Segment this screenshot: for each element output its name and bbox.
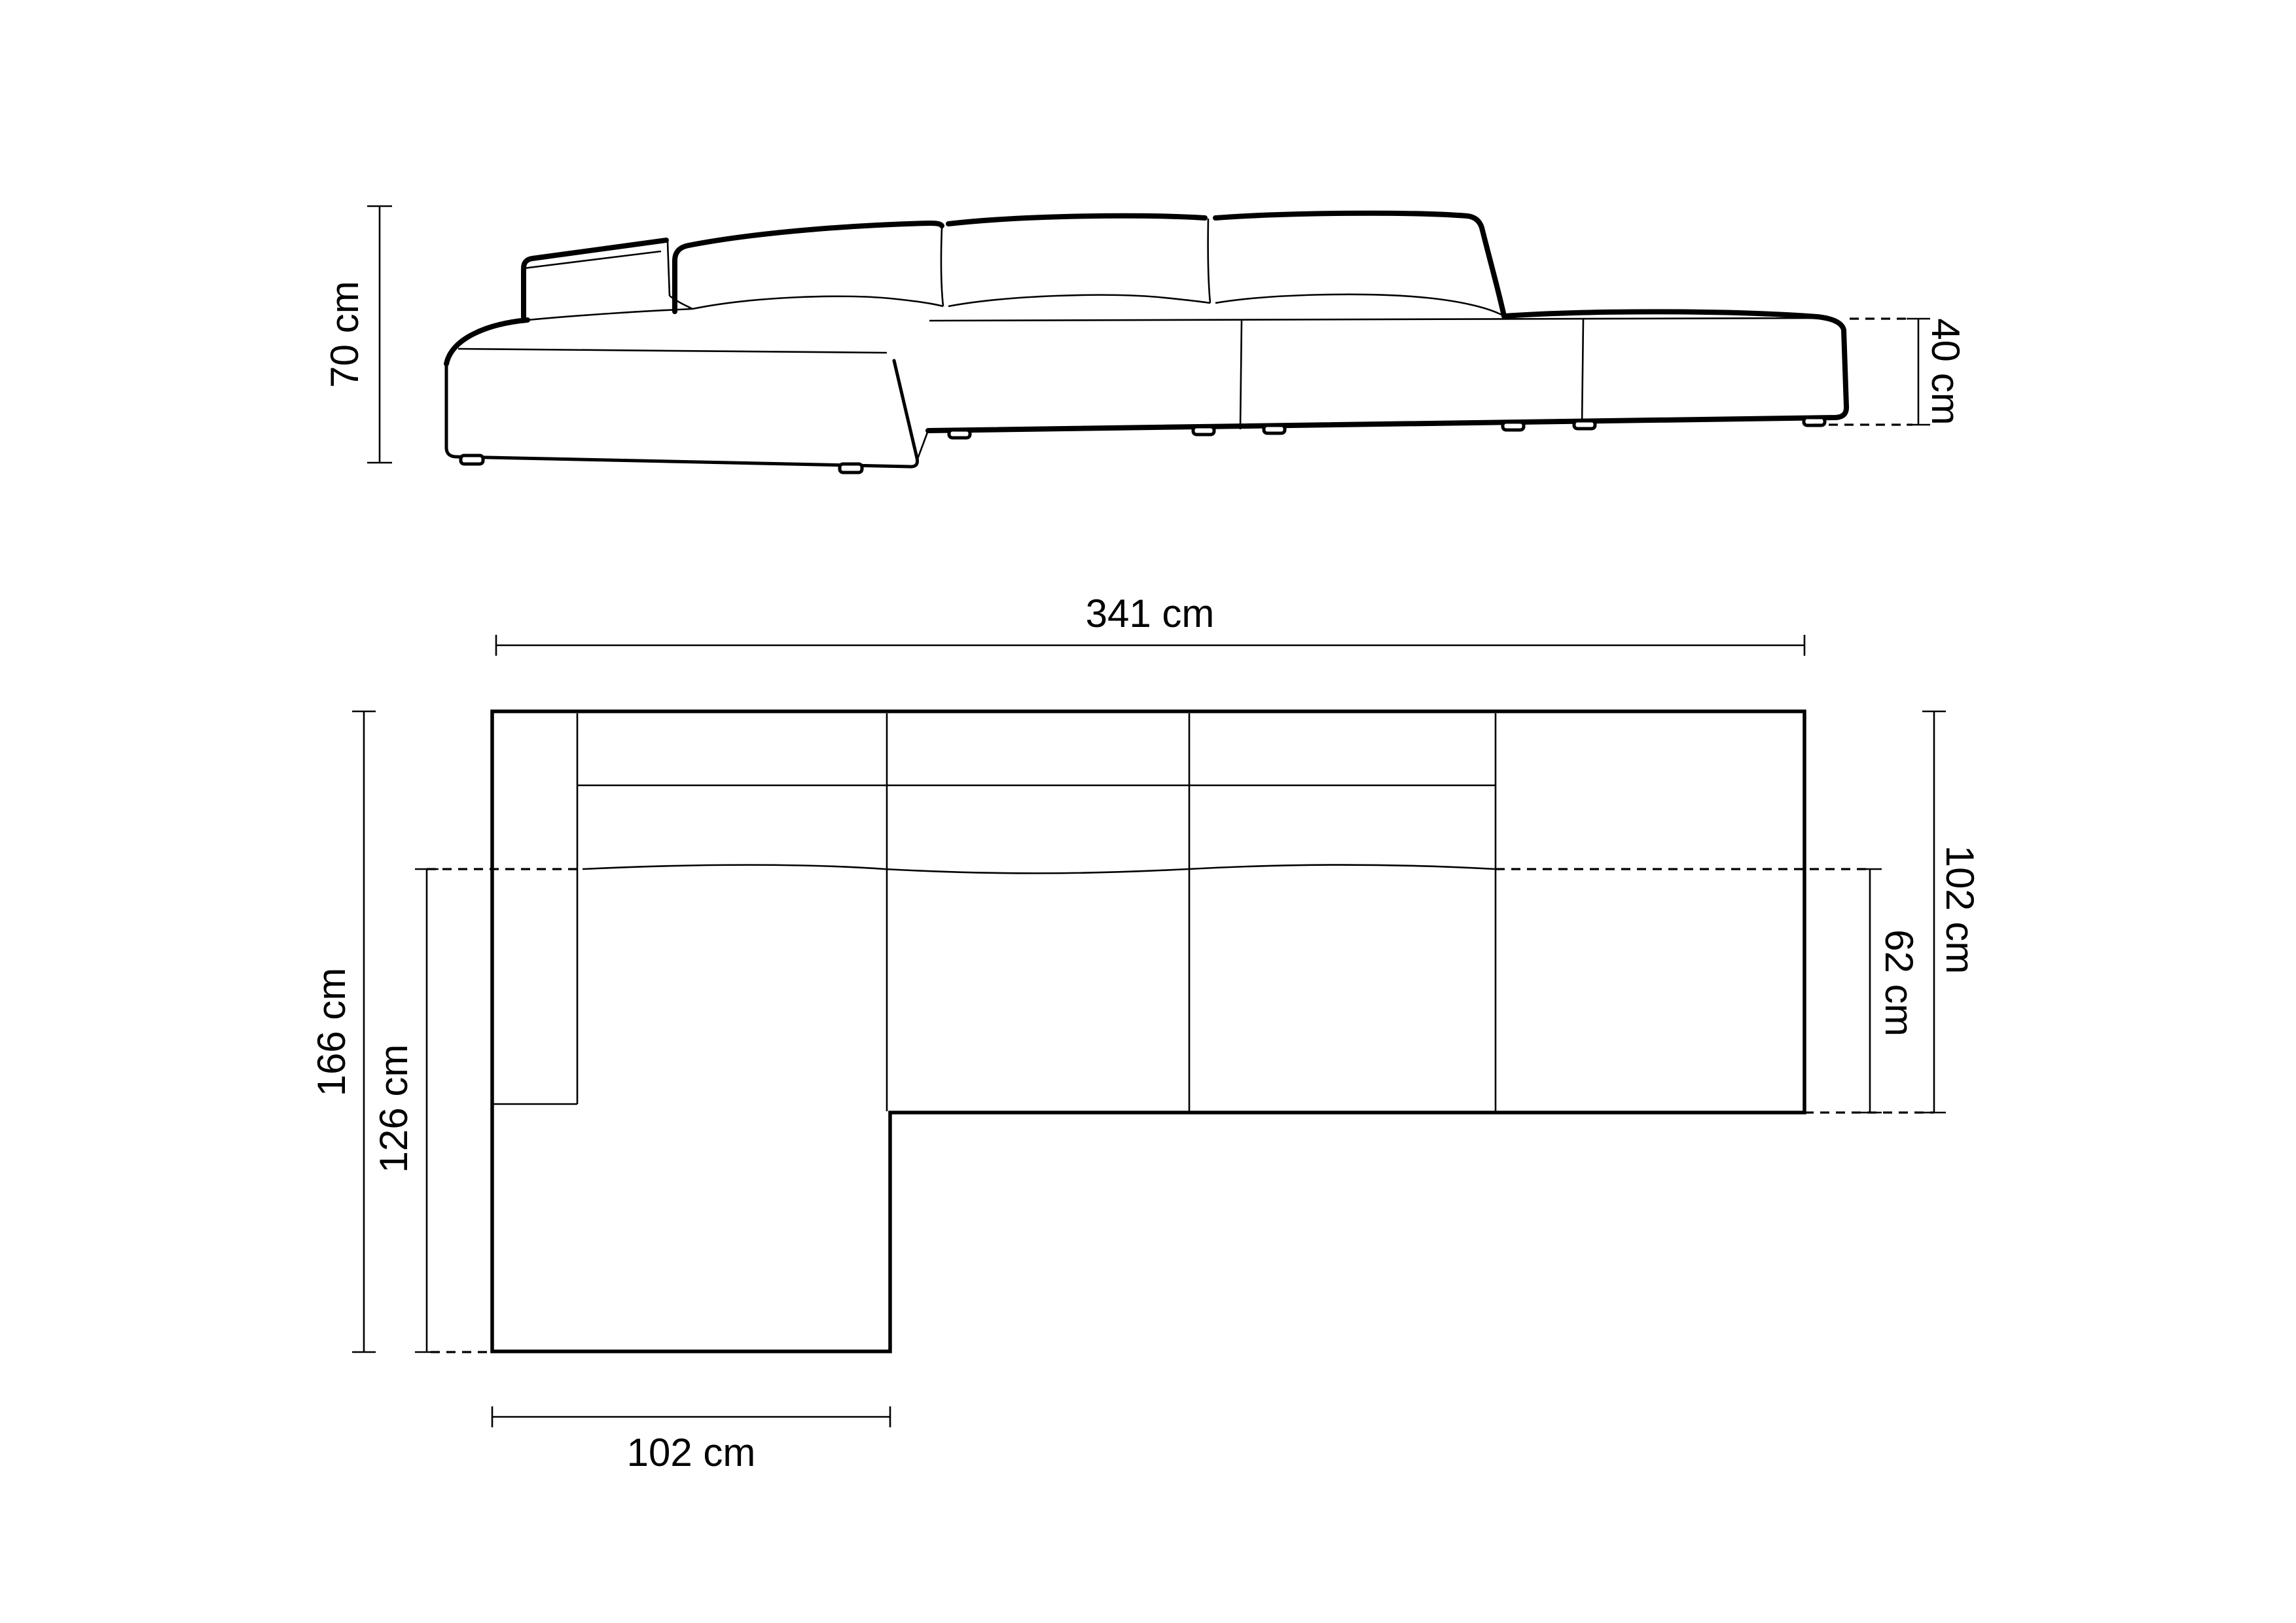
plan-outline <box>492 711 1804 1351</box>
seat-cushions <box>692 294 1504 316</box>
plan-view <box>352 635 1946 1427</box>
armrest-block <box>524 240 692 320</box>
dim-line-total-width <box>496 635 1804 656</box>
dimension-label-seat-depth: 62 cm <box>1879 929 1918 1036</box>
dimension-label-seat-height: 40 cm <box>1926 318 1965 425</box>
dimension-label-body-depth: 102 cm <box>1940 846 1979 974</box>
dimension-label-total-width: 341 cm <box>1086 594 1215 633</box>
plan-dashed-extensions <box>427 869 1934 1352</box>
dimension-label-overall-height: 70 cm <box>325 281 365 387</box>
dim-line-overall-height <box>367 206 392 463</box>
sofa-technical-drawing <box>0 0 2296 1623</box>
dim-line-chaise-width <box>492 1406 890 1427</box>
sofa-dimension-diagram: 70 cm 40 cm 341 cm 166 cm 126 cm 102 cm … <box>0 0 2296 1623</box>
dimension-label-chaise-depth: 126 cm <box>374 1044 414 1173</box>
dim-line-total-depth <box>352 711 376 1352</box>
side-elevation-view <box>367 206 1930 473</box>
plan-inner-lines <box>493 713 1496 1111</box>
back-cushions <box>675 213 1504 316</box>
ottoman-and-base <box>918 312 1846 459</box>
chaise-end-box <box>446 309 918 467</box>
dimension-label-total-depth: 166 cm <box>312 968 351 1097</box>
dimension-label-chaise-width: 102 cm <box>627 1433 756 1472</box>
dim-line-chaise-depth <box>415 869 439 1352</box>
dim-line-seat-height <box>1813 319 1930 425</box>
